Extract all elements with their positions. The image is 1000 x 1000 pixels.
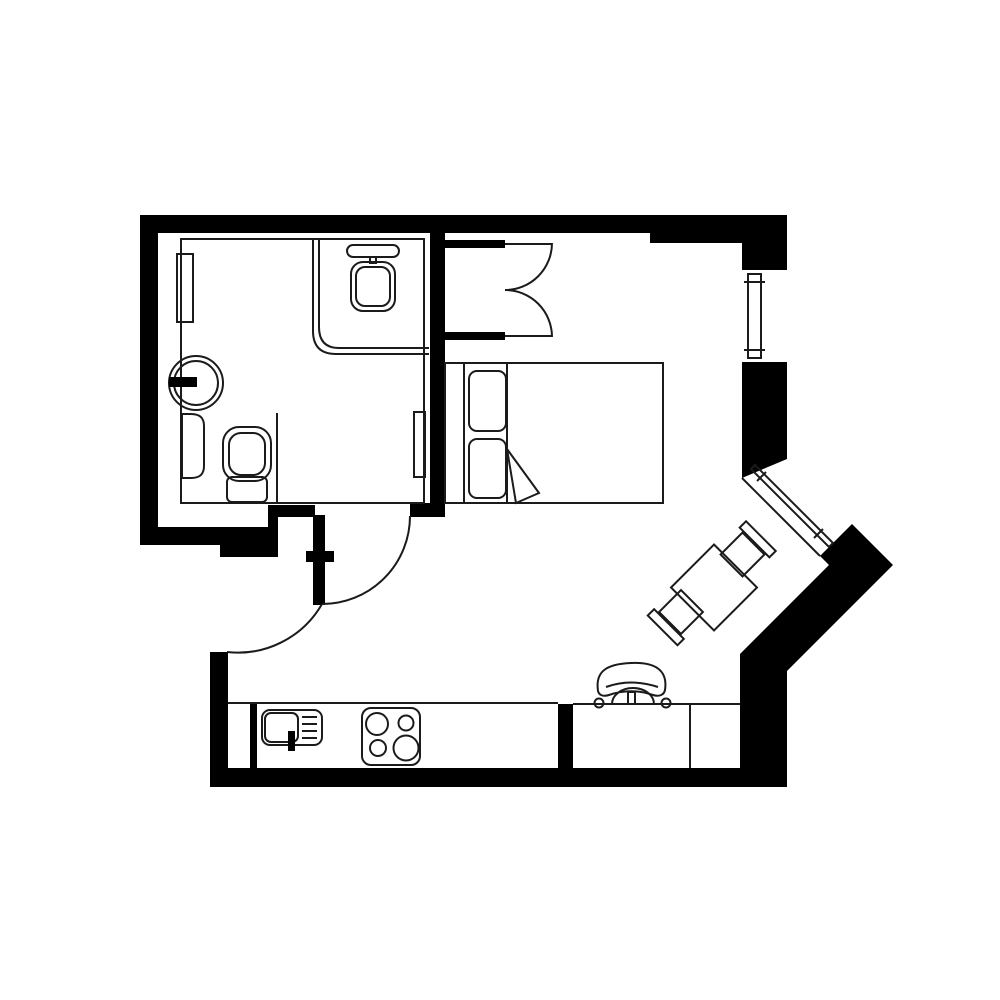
basin-tap	[169, 377, 197, 387]
wall-partition-bathroom-bedroom	[430, 233, 445, 505]
wall-hall-jamb-nub	[306, 551, 334, 562]
wall-closet-jamb-bottom	[445, 332, 505, 340]
wall-right-middle	[742, 362, 787, 478]
wall-entry-step-lower	[220, 545, 278, 557]
wall-bottom	[210, 768, 787, 787]
wall-bedroom-door-stub	[410, 503, 445, 517]
wall-counter-separator-right	[558, 704, 573, 768]
wall-left	[140, 233, 158, 545]
wall-bathroom-south	[140, 527, 270, 545]
floor-plan	[0, 0, 1000, 1000]
wall-counter-separator-left	[250, 703, 257, 768]
wall-kitchen-left	[210, 652, 228, 772]
wall-right-upper	[742, 243, 787, 270]
wall-closet-jamb-top	[445, 240, 505, 248]
kitchen-sink-tap	[288, 731, 295, 751]
floor-plan-canvas	[0, 0, 1000, 1000]
wall-bathroom-south-east	[268, 505, 315, 517]
